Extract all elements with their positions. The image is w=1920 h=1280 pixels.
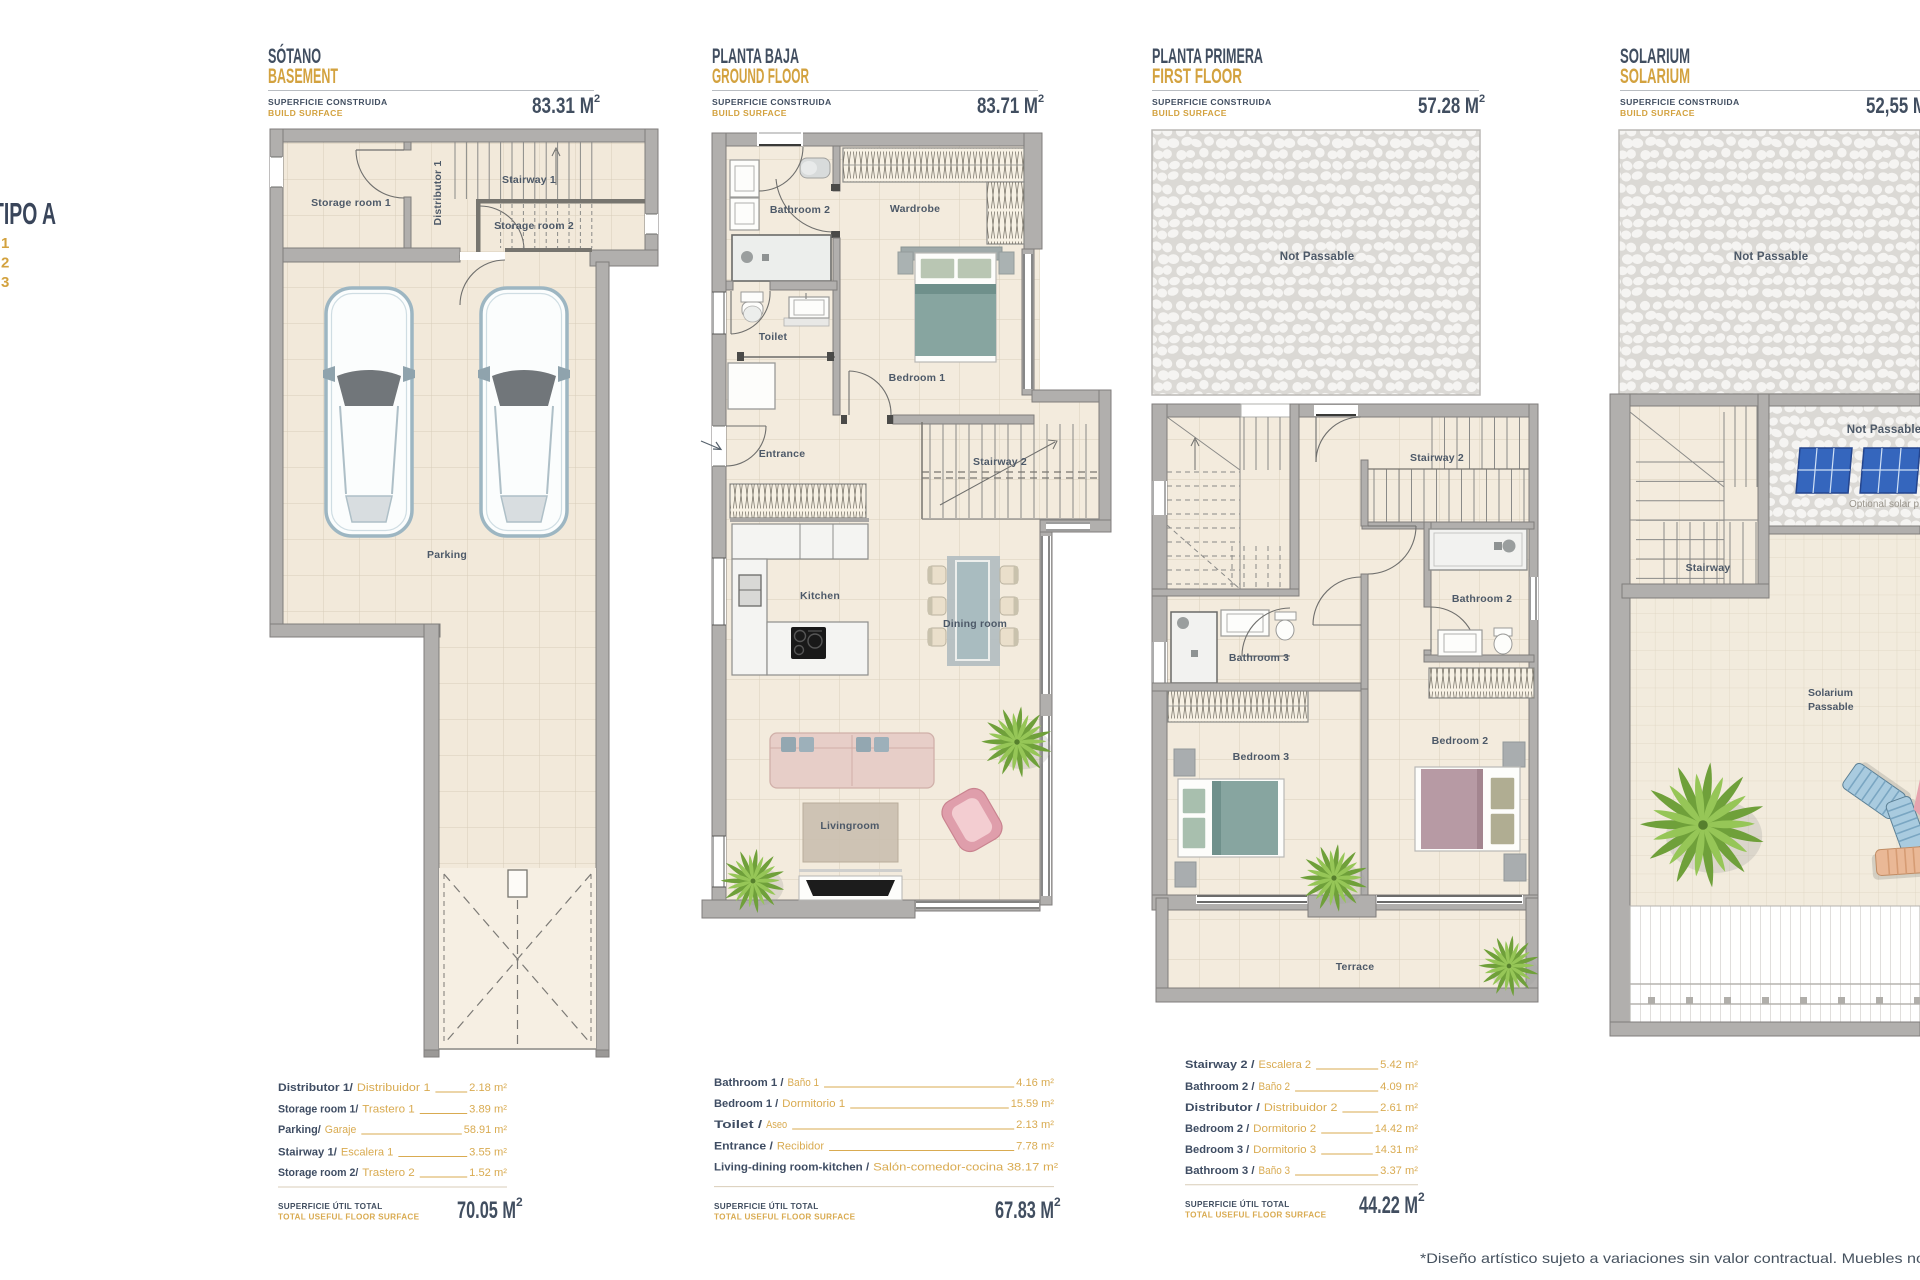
svg-text:BUILD SURFACE: BUILD SURFACE <box>712 108 787 118</box>
svg-text:SUPERFICIE ÚTIL TOTAL: SUPERFICIE ÚTIL TOTAL <box>714 1200 819 1211</box>
svg-text:FIRST FLOOR: FIRST FLOOR <box>1152 65 1242 88</box>
svg-text:2: 2 <box>1479 93 1485 105</box>
svg-text:Escalera 2: Escalera 2 <box>1259 1059 1312 1071</box>
svg-text:Stairway 2: Stairway 2 <box>973 456 1027 468</box>
svg-text:3: 3 <box>1 274 9 291</box>
svg-text:Storage room 2/: Storage room 2/ <box>278 1167 358 1179</box>
svg-text:SUPERFICIE CONSTRUIDA: SUPERFICIE CONSTRUIDA <box>1152 97 1272 107</box>
svg-text:BUILD SURFACE: BUILD SURFACE <box>268 108 343 118</box>
svg-text:2.61 m²: 2.61 m² <box>1380 1102 1418 1114</box>
svg-text:52,55 M: 52,55 M <box>1866 93 1920 118</box>
svg-text:Stairway: Stairway <box>1686 562 1731 574</box>
svg-text:SUPERFICIE ÚTIL TOTAL: SUPERFICIE ÚTIL TOTAL <box>278 1200 383 1211</box>
svg-text:83.71 M: 83.71 M <box>977 93 1038 118</box>
svg-text:3.55 m²: 3.55 m² <box>469 1147 507 1159</box>
svg-text:Salón-comedor-cocina 38.17 m²: Salón-comedor-cocina 38.17 m² <box>873 1162 1058 1174</box>
svg-text:Trastero 1: Trastero 1 <box>362 1104 415 1116</box>
svg-text:3.37 m²: 3.37 m² <box>1380 1165 1418 1177</box>
svg-text:2.13 m²: 2.13 m² <box>1016 1119 1054 1131</box>
svg-text:2: 2 <box>1418 1190 1425 1204</box>
svg-text:GROUND FLOOR: GROUND FLOOR <box>712 65 809 88</box>
svg-text:Distribuidor 2: Distribuidor 2 <box>1264 1102 1338 1114</box>
svg-text:SUPERFICIE ÚTIL TOTAL: SUPERFICIE ÚTIL TOTAL <box>1185 1198 1290 1209</box>
svg-text:Aseo: Aseo <box>766 1119 787 1131</box>
svg-text:67.83 M: 67.83 M <box>995 1197 1054 1224</box>
svg-text:2: 2 <box>594 93 600 105</box>
svg-text:BASEMENT: BASEMENT <box>268 65 338 88</box>
svg-text:Bedroom 3: Bedroom 3 <box>1233 751 1290 763</box>
svg-text:BUILD SURFACE: BUILD SURFACE <box>1152 108 1227 118</box>
svg-text:TOTAL USEFUL FLOOR SURFACE: TOTAL USEFUL FLOOR SURFACE <box>714 1213 856 1222</box>
svg-text:TOTAL USEFUL FLOOR SURFACE: TOTAL USEFUL FLOOR SURFACE <box>1185 1211 1327 1220</box>
svg-text:Bathroom 3 /: Bathroom 3 / <box>1185 1165 1255 1177</box>
svg-text:2: 2 <box>1 255 9 272</box>
svg-text:Bedroom 3 /: Bedroom 3 / <box>1185 1144 1249 1156</box>
svg-text:Dormitorio 1: Dormitorio 1 <box>782 1098 845 1110</box>
svg-text:3.89 m²: 3.89 m² <box>469 1104 507 1116</box>
svg-text:14.42 m²: 14.42 m² <box>1375 1123 1419 1135</box>
svg-text:83.31 M: 83.31 M <box>532 93 594 118</box>
svg-text:TOTAL USEFUL FLOOR SURFACE: TOTAL USEFUL FLOOR SURFACE <box>278 1213 420 1222</box>
svg-text:44.22 M: 44.22 M <box>1359 1192 1418 1219</box>
svg-text:Baño 1: Baño 1 <box>788 1077 820 1089</box>
svg-text:Storage room 1/: Storage room 1/ <box>278 1104 358 1116</box>
svg-text:2: 2 <box>1038 93 1044 105</box>
svg-text:SOLARIUM: SOLARIUM <box>1620 65 1690 88</box>
svg-text:Bedroom 2: Bedroom 2 <box>1432 735 1489 747</box>
svg-text:Wardrobe: Wardrobe <box>890 203 940 215</box>
svg-text:Baño 3: Baño 3 <box>1259 1165 1291 1177</box>
svg-text:4.16 m²: 4.16 m² <box>1016 1077 1054 1089</box>
svg-text:2: 2 <box>516 1195 523 1209</box>
svg-text:Storage room 2: Storage room 2 <box>494 220 574 232</box>
svg-text:70.05 M: 70.05 M <box>457 1197 516 1224</box>
svg-text:14.31 m²: 14.31 m² <box>1375 1144 1419 1156</box>
svg-text:Entrance /: Entrance / <box>714 1141 773 1153</box>
svg-text:Distributor 1/: Distributor 1/ <box>278 1082 353 1094</box>
svg-text:Livingroom: Livingroom <box>820 820 879 832</box>
svg-text:Dining room: Dining room <box>943 618 1007 630</box>
svg-text:Passable: Passable <box>1808 701 1854 713</box>
svg-text:4.09 m²: 4.09 m² <box>1380 1081 1418 1093</box>
svg-text:Parking/: Parking/ <box>278 1124 321 1136</box>
svg-text:Dormitorio 2: Dormitorio 2 <box>1253 1123 1316 1135</box>
svg-text:Terrace: Terrace <box>1336 961 1375 973</box>
svg-text:Toilet: Toilet <box>759 331 788 343</box>
svg-text:Bathroom 2 /: Bathroom 2 / <box>1185 1081 1255 1093</box>
svg-text:Dormitorio 3: Dormitorio 3 <box>1253 1144 1316 1156</box>
svg-text:Bedroom 1 /: Bedroom 1 / <box>714 1098 778 1110</box>
svg-text:Stairway 1: Stairway 1 <box>502 174 556 186</box>
svg-text:Recibidor: Recibidor <box>777 1141 825 1153</box>
svg-text:SUPERFICIE CONSTRUIDA: SUPERFICIE CONSTRUIDA <box>712 97 832 107</box>
svg-text:Bathroom 2: Bathroom 2 <box>1452 593 1512 605</box>
svg-text:Escalera 1: Escalera 1 <box>341 1147 394 1159</box>
svg-text:SUPERFICIE CONSTRUIDA: SUPERFICIE CONSTRUIDA <box>1620 97 1740 107</box>
svg-text:TIPO A: TIPO A <box>0 196 56 231</box>
svg-text:Storage room 1: Storage room 1 <box>311 197 391 209</box>
svg-text:Baño 2: Baño 2 <box>1259 1081 1291 1093</box>
svg-text:Distributor 1: Distributor 1 <box>432 160 444 225</box>
svg-text:Bathroom 1 /: Bathroom 1 / <box>714 1077 784 1089</box>
svg-text:15.59 m²: 15.59 m² <box>1011 1098 1055 1110</box>
svg-text:BUILD SURFACE: BUILD SURFACE <box>1620 108 1695 118</box>
svg-text:Trastero 2: Trastero 2 <box>362 1167 415 1179</box>
svg-text:SUPERFICIE CONSTRUIDA: SUPERFICIE CONSTRUIDA <box>268 97 388 107</box>
svg-text:5.42 m²: 5.42 m² <box>1380 1059 1418 1071</box>
svg-text:Solarium: Solarium <box>1808 687 1853 699</box>
svg-text:Optional solar p: Optional solar p <box>1849 499 1919 510</box>
svg-text:57.28 M: 57.28 M <box>1418 93 1479 118</box>
svg-text:Not Passable: Not Passable <box>1280 251 1355 263</box>
svg-text:Not Passable: Not Passable <box>1847 424 1920 436</box>
svg-text:Stairway 2: Stairway 2 <box>1410 452 1464 464</box>
svg-text:Bedroom 2 /: Bedroom 2 / <box>1185 1123 1249 1135</box>
svg-text:7.78 m²: 7.78 m² <box>1016 1141 1054 1153</box>
svg-text:Entrance: Entrance <box>759 448 806 460</box>
svg-text:Garaje: Garaje <box>325 1124 357 1136</box>
svg-text:Bathroom 2: Bathroom 2 <box>770 204 830 216</box>
svg-text:Parking: Parking <box>427 549 467 561</box>
svg-text:Bathroom 3: Bathroom 3 <box>1229 652 1289 664</box>
svg-text:1: 1 <box>1 235 9 252</box>
svg-text:1.52 m²: 1.52 m² <box>469 1167 507 1179</box>
svg-text:*Diseño artístico sujeto a var: *Diseño artístico sujeto a variaciones s… <box>1420 1250 1920 1266</box>
svg-text:Living-dining room-kitchen /: Living-dining room-kitchen / <box>714 1162 869 1174</box>
svg-text:Distribuidor 1: Distribuidor 1 <box>357 1082 431 1094</box>
svg-text:Stairway 1/: Stairway 1/ <box>278 1147 337 1159</box>
svg-text:2.18 m²: 2.18 m² <box>469 1082 507 1094</box>
svg-text:2: 2 <box>1054 1195 1061 1209</box>
svg-text:Distributor /: Distributor / <box>1185 1102 1260 1114</box>
svg-text:Kitchen: Kitchen <box>800 590 840 602</box>
svg-text:Bedroom 1: Bedroom 1 <box>889 372 946 384</box>
svg-text:Toilet /: Toilet / <box>714 1119 762 1131</box>
svg-text:Not Passable: Not Passable <box>1734 251 1809 263</box>
svg-text:58.91 m²: 58.91 m² <box>464 1124 508 1136</box>
svg-text:Stairway 2 /: Stairway 2 / <box>1185 1059 1255 1071</box>
